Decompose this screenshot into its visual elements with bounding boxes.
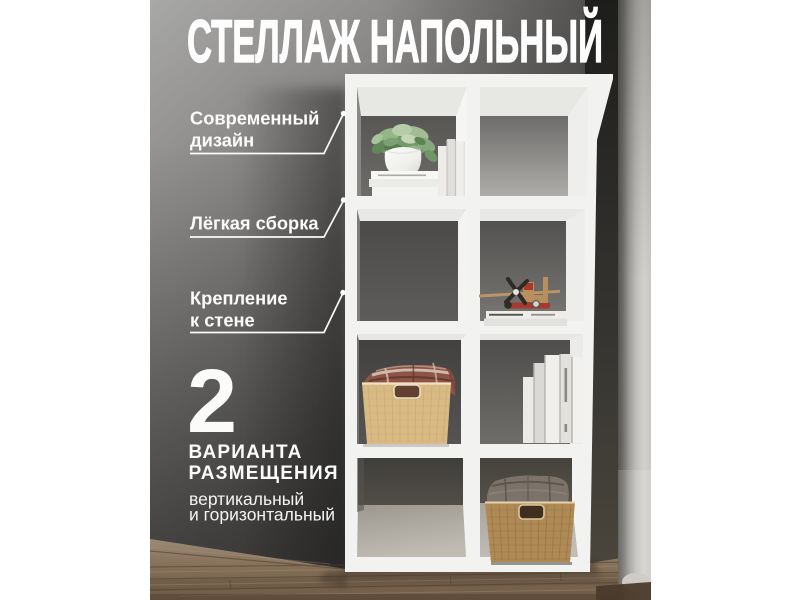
svg-text:дизайн: дизайн: [190, 130, 254, 151]
svg-text:и горизонтальный: и горизонтальный: [189, 505, 335, 525]
svg-text:Крепление: Крепление: [190, 288, 288, 309]
svg-text:Лёгкая сборка: Лёгкая сборка: [190, 213, 319, 234]
svg-text:ВАРИАНТА: ВАРИАНТА: [189, 442, 303, 463]
svg-text:2: 2: [187, 352, 237, 452]
svg-text:РАЗМЕЩЕНИЯ: РАЗМЕЩЕНИЯ: [189, 463, 339, 484]
svg-text:к стене: к стене: [190, 310, 255, 331]
svg-text:Современный: Современный: [190, 108, 319, 129]
svg-text:СТЕЛЛАЖ НАПОЛЬНЫЙ: СТЕЛЛАЖ НАПОЛЬНЫЙ: [187, 8, 603, 75]
